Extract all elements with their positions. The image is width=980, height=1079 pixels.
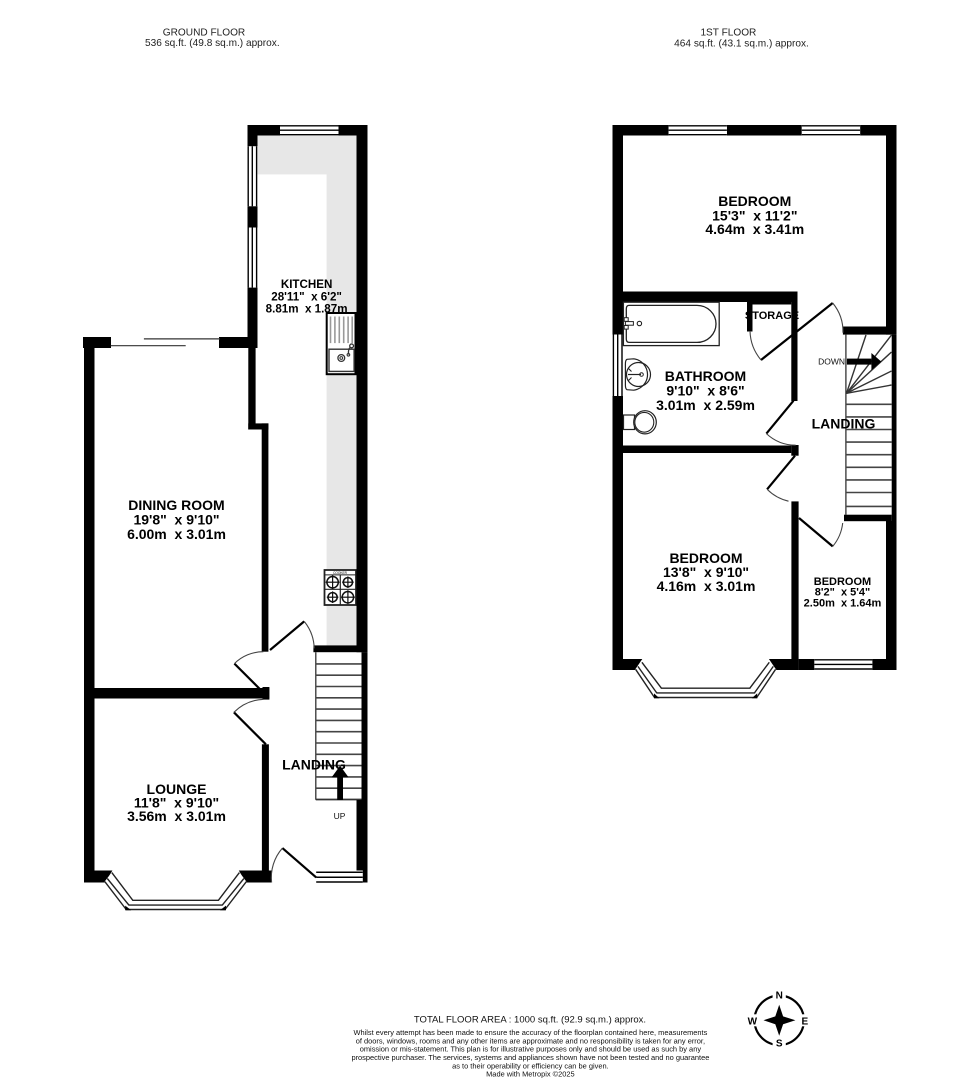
svg-text:N: N <box>776 991 783 1002</box>
svg-text:STORAGE: STORAGE <box>745 310 799 322</box>
svg-text:LANDING: LANDING <box>812 416 876 432</box>
svg-text:W: W <box>748 1016 758 1027</box>
svg-text:8.81m x 1.87m: 8.81m x 1.87m <box>266 303 348 316</box>
svg-text:TOTAL FLOOR AREA : 1000 sq.ft.: TOTAL FLOOR AREA : 1000 sq.ft. (92.9 sq.… <box>414 1015 646 1026</box>
svg-text:28'11" x 6'2": 28'11" x 6'2" <box>271 290 342 303</box>
svg-text:DINING ROOM: DINING ROOM <box>128 497 224 513</box>
svg-text:464 sq.ft. (43.1 sq.m.) approx: 464 sq.ft. (43.1 sq.m.) approx. <box>674 38 809 49</box>
svg-text:DOWN: DOWN <box>818 357 845 367</box>
svg-text:Made with Metropix ©2025: Made with Metropix ©2025 <box>486 1070 575 1079</box>
svg-text:S: S <box>776 1039 783 1050</box>
svg-text:4.16m x 3.01m: 4.16m x 3.01m <box>657 578 756 594</box>
svg-text:3.56m x 3.01m: 3.56m x 3.01m <box>127 808 226 824</box>
svg-text:2.50m x 1.64m: 2.50m x 1.64m <box>804 597 882 609</box>
svg-text:3.01m x 2.59m: 3.01m x 2.59m <box>656 397 755 413</box>
svg-text:1ST FLOOR: 1ST FLOOR <box>700 28 756 39</box>
svg-text:GROUND FLOOR: GROUND FLOOR <box>163 27 245 38</box>
svg-text:6.00m x 3.01m: 6.00m x 3.01m <box>127 526 226 542</box>
svg-text:KITCHEN: KITCHEN <box>281 278 333 291</box>
svg-text:E: E <box>801 1016 808 1027</box>
svg-text:UP: UP <box>334 811 346 821</box>
svg-text:COOKER: COOKER <box>333 571 348 575</box>
svg-text:536 sq.ft. (49.8 sq.m.) approx: 536 sq.ft. (49.8 sq.m.) approx. <box>145 38 280 49</box>
svg-text:4.64m x 3.41m: 4.64m x 3.41m <box>705 221 804 237</box>
svg-text:LANDING: LANDING <box>282 757 346 773</box>
